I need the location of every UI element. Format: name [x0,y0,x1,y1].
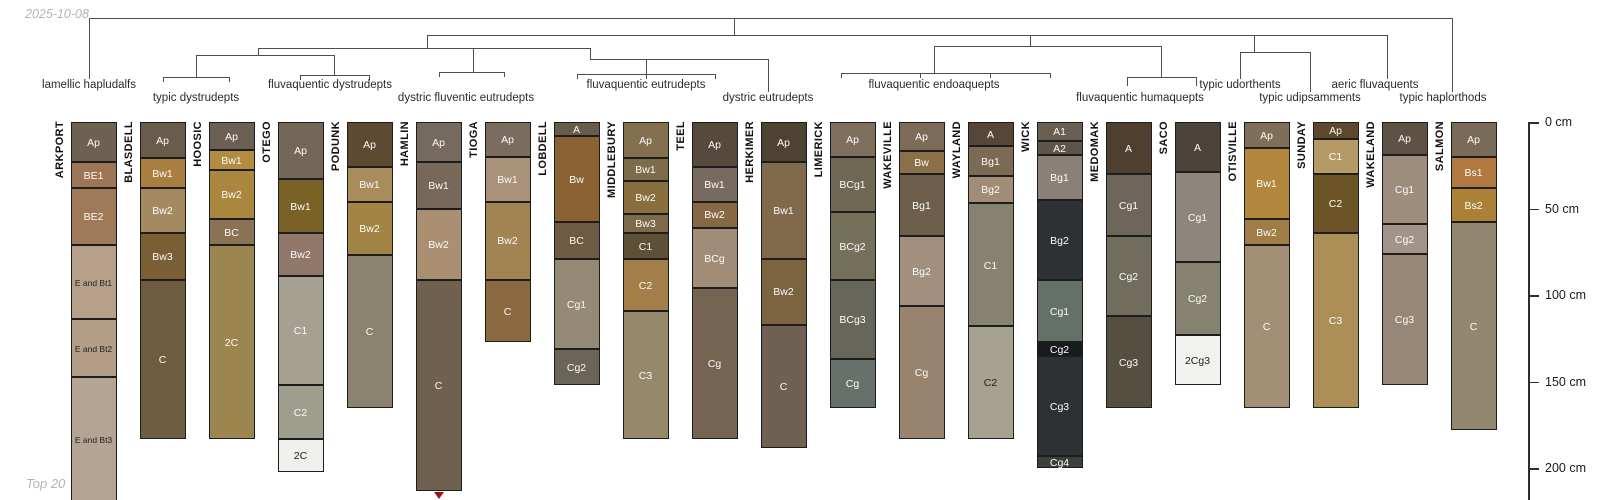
profile-column-teel: ApBw1Bw2BCgCg [692,122,738,439]
horizon-a: A [1175,122,1221,172]
horizon-ap: Ap [692,122,738,167]
dendrogram-vline [934,46,935,73]
depth-axis-tick-label: 100 cm [1545,288,1586,302]
horizon-label: Bw1 [762,205,806,217]
profile-column-wick: A1A2Bg1Bg2Cg1Cg2Cg3Cg4 [1037,122,1083,469]
profile-column-otisville: ApBw1Bw2C [1244,122,1290,408]
horizon-label: A [969,129,1013,141]
dendrogram-vline [1030,35,1031,46]
horizon-label: Ap [279,145,323,157]
horizon-ap: Ap [1244,122,1290,148]
horizon-label: 2C [279,450,323,462]
horizon-c1: C1 [968,203,1014,326]
dendrogram-vline [258,48,259,55]
dendrogram-vline [768,59,769,92]
horizon-label: C1 [279,325,323,337]
horizon-ap: Ap [347,122,393,167]
horizon-label: Bw1 [210,155,254,167]
horizon-label: A [1176,142,1220,154]
dendrogram-vline [334,55,335,75]
horizon-label: Bw2 [486,235,530,247]
horizon-e-and-bt3: E and Bt3 [71,377,117,500]
horizon-bw2: Bw2 [278,233,324,276]
horizon-bw1: Bw1 [761,162,807,259]
horizon-label: Bw2 [348,223,392,235]
horizon-label: Bg1 [900,200,944,212]
horizon-label: Bw [555,174,599,186]
horizon-label: E and Bt1 [72,278,116,288]
horizon-label: C [417,380,461,392]
dendrogram-hline [258,48,590,49]
horizon-label: BC [210,227,254,239]
horizon-bg1: Bg1 [899,174,945,236]
horizon-label: C2 [969,377,1013,389]
horizon-bw1: Bw1 [692,167,738,202]
profile-column-middlebury: ApBw1Bw2Bw3C1C2C3 [623,122,669,439]
profile-count-annotation: Top 20 [26,476,65,491]
horizon-label: A2 [1038,143,1082,155]
horizon-bw2: Bw2 [761,259,807,325]
series-name-label: BLASDELL [123,121,135,183]
series-name-label: HERKIMER [744,121,756,183]
series-name-label: WAKELAND [1365,121,1377,188]
horizon-label: Bw2 [1245,227,1289,239]
horizon-bw1: Bw1 [278,179,324,233]
dendrogram-vline [590,48,591,59]
horizon-a: A [554,122,600,136]
dendrogram-vline [715,74,716,79]
horizon-label: Cg1 [1383,184,1427,196]
dendrogram-vline [473,48,474,72]
horizon-label: Ap [1245,130,1289,142]
horizon-cg: Cg [830,359,876,407]
horizon-label: Bg1 [969,156,1013,168]
taxon-label: typic udipsamments [1259,92,1361,104]
series-name-label: TIOGA [468,121,480,158]
horizon-label: C1 [969,260,1013,272]
series-name-label: LIMERICK [813,121,825,177]
dendrogram-hline [1240,52,1310,53]
dendrogram-vline [841,73,842,78]
series-name-label: SACO [1158,121,1170,154]
horizon-label: C [762,381,806,393]
horizon-bw2: Bw2 [416,209,462,280]
horizon-label: Bw1 [279,201,323,213]
horizon-bw1: Bw1 [140,158,186,187]
depth-axis-tick-label: 200 cm [1545,461,1586,475]
horizon-label: Ap [1314,125,1358,137]
horizon-label: Bw1 [348,179,392,191]
series-name-label: WICK [1020,121,1032,152]
horizon-label: C2 [1314,198,1358,210]
horizon-label: Ap [900,131,944,143]
profile-column-wakeland: ApCg1Cg2Cg3 [1382,122,1428,386]
horizon-label: Cg1 [555,299,599,311]
horizon-bg2: Bg2 [1037,200,1083,280]
horizon-label: Cg [831,378,875,390]
dendrogram-vline [1310,52,1311,92]
dendrogram-vline [196,55,197,77]
horizon-c: C [140,280,186,439]
horizon-bw1: Bw1 [347,167,393,202]
horizon-ap: Ap [416,122,462,162]
horizon-e-and-bt1: E and Bt1 [71,245,117,319]
series-name-label: MEDOMAK [1089,121,1101,182]
horizon-label: Bw2 [279,249,323,261]
horizon-label: Bw2 [417,239,461,251]
dendrogram-hline [934,46,1161,47]
horizon-e-and-bt2: E and Bt2 [71,319,117,376]
horizon-label: C [486,306,530,318]
horizon-cg2: Cg2 [1175,262,1221,335]
series-name-label: TEEL [675,121,687,151]
horizon-bg2: Bg2 [899,236,945,305]
horizon-label: A [1107,143,1151,155]
horizon-label: Ap [1383,133,1427,145]
horizon-label: C1 [1314,151,1358,163]
depth-axis-tick [1528,122,1539,124]
horizon-bw1: Bw1 [209,150,255,171]
horizon-label: C2 [279,407,323,419]
horizon-label: C [348,326,392,338]
horizon-label: Bw2 [762,286,806,298]
taxon-label: dystric fluventic eutrudepts [398,92,534,104]
profile-truncation-arrow [434,492,444,499]
horizon-ap: Ap [209,122,255,150]
horizon-label: Bw1 [1245,178,1289,190]
horizon-c2: C2 [278,385,324,439]
horizon-bw1: Bw1 [485,157,531,202]
horizon-ap: Ap [830,122,876,157]
horizon-label: E and Bt2 [72,344,116,354]
horizon-label: Bw2 [210,189,254,201]
taxon-label: fluvaquentic eutrudepts [587,79,706,91]
dendrogram-hline [1127,77,1196,78]
horizon-bs2: Bs2 [1451,188,1497,223]
horizon-bcg3: BCg3 [830,280,876,360]
horizon-label: Bw2 [141,205,185,217]
horizon-label: BE2 [72,211,116,223]
dendrogram-vline [734,18,735,35]
horizon-c: C [1244,245,1290,408]
series-name-label: HAMLIN [399,121,411,166]
horizon-bw: Bw [554,136,600,223]
profile-column-herkimer: ApBw1Bw2C [761,122,807,448]
horizon-ap: Ap [1451,122,1497,157]
horizon-label: Ap [762,137,806,149]
horizon-label: C [1452,321,1496,333]
dendrogram-vline [577,74,578,79]
horizon-c: C [761,325,807,448]
horizon-label: Cg2 [1107,271,1151,283]
taxon-label: typic dystrudepts [153,92,239,104]
dendrogram-vline [427,35,428,48]
horizon-ap: Ap [623,122,669,158]
depth-axis-tick-label: 50 cm [1545,202,1579,216]
dendrogram-vline [1050,73,1051,78]
horizon-ap: Ap [1382,122,1428,155]
horizon-cg2: Cg2 [1382,224,1428,253]
horizon-label: C3 [624,370,668,382]
horizon-cg2: Cg2 [1037,342,1083,356]
horizon-bcg: BCg [692,228,738,289]
horizon-label: Bw1 [486,174,530,186]
profile-column-hamlin: ApBw1Bw2C [416,122,462,491]
depth-axis-tick-label: 0 cm [1545,115,1572,129]
horizon-cg2: Cg2 [1106,236,1152,316]
horizon-bw2: Bw2 [1244,219,1290,245]
horizon-2c: 2C [278,439,324,472]
horizon-label: Bw1 [141,168,185,180]
horizon-label: Cg [693,358,737,370]
horizon-label: Bg2 [969,184,1013,196]
dendrogram-vline [504,72,505,77]
horizon-cg3: Cg3 [1382,254,1428,386]
horizon-label: Bg1 [1038,172,1082,184]
profile-column-tioga: ApBw1Bw2C [485,122,531,342]
horizon-label: Bw1 [417,180,461,192]
horizon-a: A [1106,122,1152,174]
horizon-c1: C1 [623,233,669,259]
dendrogram-vline [1387,35,1388,79]
taxon-label: typic udorthents [1199,79,1280,91]
horizon-a: A [968,122,1014,146]
horizon-bw2: Bw2 [347,202,393,256]
horizon-bw1: Bw1 [623,158,669,181]
horizon-c: C [416,280,462,491]
horizon-bw1: Bw1 [1244,148,1290,219]
horizon-bw: Bw [899,151,945,174]
horizon-bs1: Bs1 [1451,157,1497,188]
horizon-label: Ap [141,135,185,147]
dendrogram-vline [1127,77,1128,86]
horizon-cg1: Cg1 [1037,280,1083,342]
horizon-ap: Ap [761,122,807,162]
horizon-label: BC [555,235,599,247]
horizon-c: C [485,280,531,342]
dendrogram-vline [1196,77,1197,86]
depth-axis-tick [1528,209,1539,211]
horizon-be1: BE1 [71,162,117,188]
horizon-label: BCg1 [831,179,875,191]
profile-column-hoosic: ApBw1Bw2BC2C [209,122,255,439]
horizon-bcg1: BCg1 [830,157,876,212]
horizon-label: Ap [1452,134,1496,146]
horizon-label: Cg3 [1383,314,1427,326]
horizon-label: Cg1 [1176,212,1220,224]
horizon-label: Bs2 [1452,200,1496,212]
horizon-2cg3: 2Cg3 [1175,335,1221,385]
horizon-c2: C2 [968,326,1014,439]
series-name-label: OTISVILLE [1227,121,1239,181]
horizon-label: Bw [900,157,944,169]
horizon-cg1: Cg1 [1175,172,1221,262]
horizon-label: Ap [486,134,530,146]
taxon-label: aeric fluvaquents [1332,79,1419,91]
depth-axis-tick [1528,468,1539,470]
horizon-label: C3 [1314,315,1358,327]
horizon-label: BCg [693,253,737,265]
profile-column-podunk: ApBw1Bw2C [347,122,393,408]
profile-column-wayland: ABg1Bg2C1C2 [968,122,1014,439]
horizon-ap: Ap [1313,122,1359,139]
horizon-label: Cg1 [1038,306,1082,318]
horizon-label: Ap [348,139,392,151]
profile-column-sunday: ApC1C2C3 [1313,122,1359,408]
horizon-cg4: Cg4 [1037,456,1083,468]
horizon-c1: C1 [1313,139,1359,174]
horizon-label: Bw3 [141,251,185,263]
horizon-bg2: Bg2 [968,176,1014,204]
dendrogram-hline [89,18,1452,19]
horizon-label: C [141,354,185,366]
dendrogram-vline [920,73,921,78]
horizon-label: 2C [210,337,254,349]
profile-column-blasdell: ApBw1Bw2Bw3C [140,122,186,439]
horizon-label: 2Cg3 [1176,355,1220,367]
horizon-label: Bw1 [624,164,668,176]
horizon-cg3: Cg3 [1037,356,1083,456]
dendrogram-hline [163,77,229,78]
depth-axis-tick [1528,382,1539,384]
horizon-label: BCg3 [831,314,875,326]
horizon-c: C [1451,222,1497,430]
horizon-a2: A2 [1037,141,1083,155]
horizon-bg1: Bg1 [968,146,1014,175]
horizon-label: Bw2 [624,192,668,204]
horizon-label: Ap [831,134,875,146]
horizon-cg1: Cg1 [554,259,600,349]
profile-column-wakeville: ApBwBg1Bg2Cg [899,122,945,439]
horizon-label: Bg2 [900,266,944,278]
horizon-label: Bw1 [693,179,737,191]
horizon-2c: 2C [209,245,255,439]
series-name-label: SALMON [1434,121,1446,171]
horizon-bw2: Bw2 [485,202,531,280]
dendrogram-hline [841,73,1050,74]
taxon-label: dystric eutrudepts [723,92,814,104]
horizon-bw2: Bw2 [140,188,186,233]
profile-column-lobdell: ABwBCCg1Cg2 [554,122,600,386]
horizon-label: C2 [624,280,668,292]
dendrogram-vline [89,18,90,79]
horizon-cg1: Cg1 [1382,155,1428,224]
horizon-ap: Ap [899,122,945,151]
horizon-c: C [347,255,393,407]
horizon-ap: Ap [71,122,117,162]
depth-axis-line [1528,122,1530,500]
series-name-label: ARKPORT [54,121,66,178]
horizon-bc: BC [554,222,600,258]
horizon-label: Ap [693,139,737,151]
dendrogram-vline [990,73,991,78]
horizon-label: Ap [417,137,461,149]
dendrogram-hline [590,59,768,60]
series-name-label: PODUNK [330,121,342,171]
horizon-label: Ap [624,135,668,147]
horizon-label: Bs1 [1452,167,1496,179]
series-name-label: LOBDELL [537,121,549,176]
horizon-label: A [555,124,599,136]
horizon-bw3: Bw3 [140,233,186,280]
horizon-label: Ap [72,137,116,149]
horizon-label: Ap [210,131,254,143]
dendrogram-vline [229,77,230,82]
taxon-label: lamellic hapludalfs [42,79,136,91]
horizon-label: Bg2 [1038,235,1082,247]
taxon-label: fluvaquentic dystrudepts [268,79,392,91]
horizon-label: Bw3 [624,218,668,230]
horizon-label: BE1 [72,170,116,182]
taxon-label: fluvaquentic endoaquepts [868,79,999,91]
horizon-ap: Ap [485,122,531,157]
horizon-bw2: Bw2 [623,181,669,214]
dendrogram-vline [1240,52,1241,79]
dendrogram-hline [439,72,504,73]
horizon-c3: C3 [1313,233,1359,408]
horizon-bw2: Bw2 [692,202,738,228]
taxon-label: typic haplorthods [1400,92,1487,104]
horizon-cg3: Cg3 [1106,316,1152,408]
dendrogram-vline [163,77,164,82]
date-annotation: 2025-10-08 [25,7,89,21]
series-name-label: HOOSIC [192,121,204,167]
profile-column-saco: ACg1Cg22Cg3 [1175,122,1221,386]
dendrogram-vline [1452,18,1453,92]
dendrogram-hline [427,35,1387,36]
horizon-bw3: Bw3 [623,214,669,233]
horizon-ap: Ap [140,122,186,158]
horizon-bc: BC [209,219,255,245]
series-name-label: WAYLAND [951,121,963,178]
horizon-cg: Cg [899,306,945,439]
horizon-label: Cg2 [1383,234,1427,246]
profile-column-medomak: ACg1Cg2Cg3 [1106,122,1152,408]
dendrogram-vline [646,59,647,74]
horizon-label: Cg2 [555,362,599,374]
horizon-label: Cg2 [1038,344,1082,356]
horizon-bw1: Bw1 [416,162,462,209]
horizon-label: Cg4 [1038,457,1082,469]
profile-column-arkport: ApBE1BE2E and Bt1E and Bt2E and Bt3 [71,122,117,500]
horizon-bw2: Bw2 [209,170,255,218]
horizon-label: C1 [624,241,668,253]
profile-column-salmon: ApBs1Bs2C [1451,122,1497,431]
series-name-label: MIDDLEBURY [606,121,618,198]
dendrogram-hline [300,75,369,76]
horizon-c1: C1 [278,276,324,385]
depth-axis-tick [1528,295,1539,297]
dendrogram-vline [439,72,440,77]
dendrogram-vline [1254,35,1255,52]
horizon-c2: C2 [623,259,669,311]
horizon-label: Cg2 [1176,293,1220,305]
horizon-c3: C3 [623,311,669,439]
horizon-cg2: Cg2 [554,349,600,385]
horizon-c2: C2 [1313,174,1359,233]
profile-column-otego: ApBw1Bw2C1C22C [278,122,324,472]
depth-axis-tick-label: 150 cm [1545,375,1586,389]
horizon-ap: Ap [278,122,324,179]
horizon-bcg2: BCg2 [830,212,876,280]
horizon-label: Cg1 [1107,200,1151,212]
horizon-label: Cg [900,367,944,379]
horizon-label: A1 [1038,126,1082,138]
horizon-cg: Cg [692,288,738,439]
taxon-label: fluvaquentic humaquepts [1076,92,1204,104]
horizon-a1: A1 [1037,122,1083,141]
series-name-label: WAKEVILLE [882,121,894,189]
